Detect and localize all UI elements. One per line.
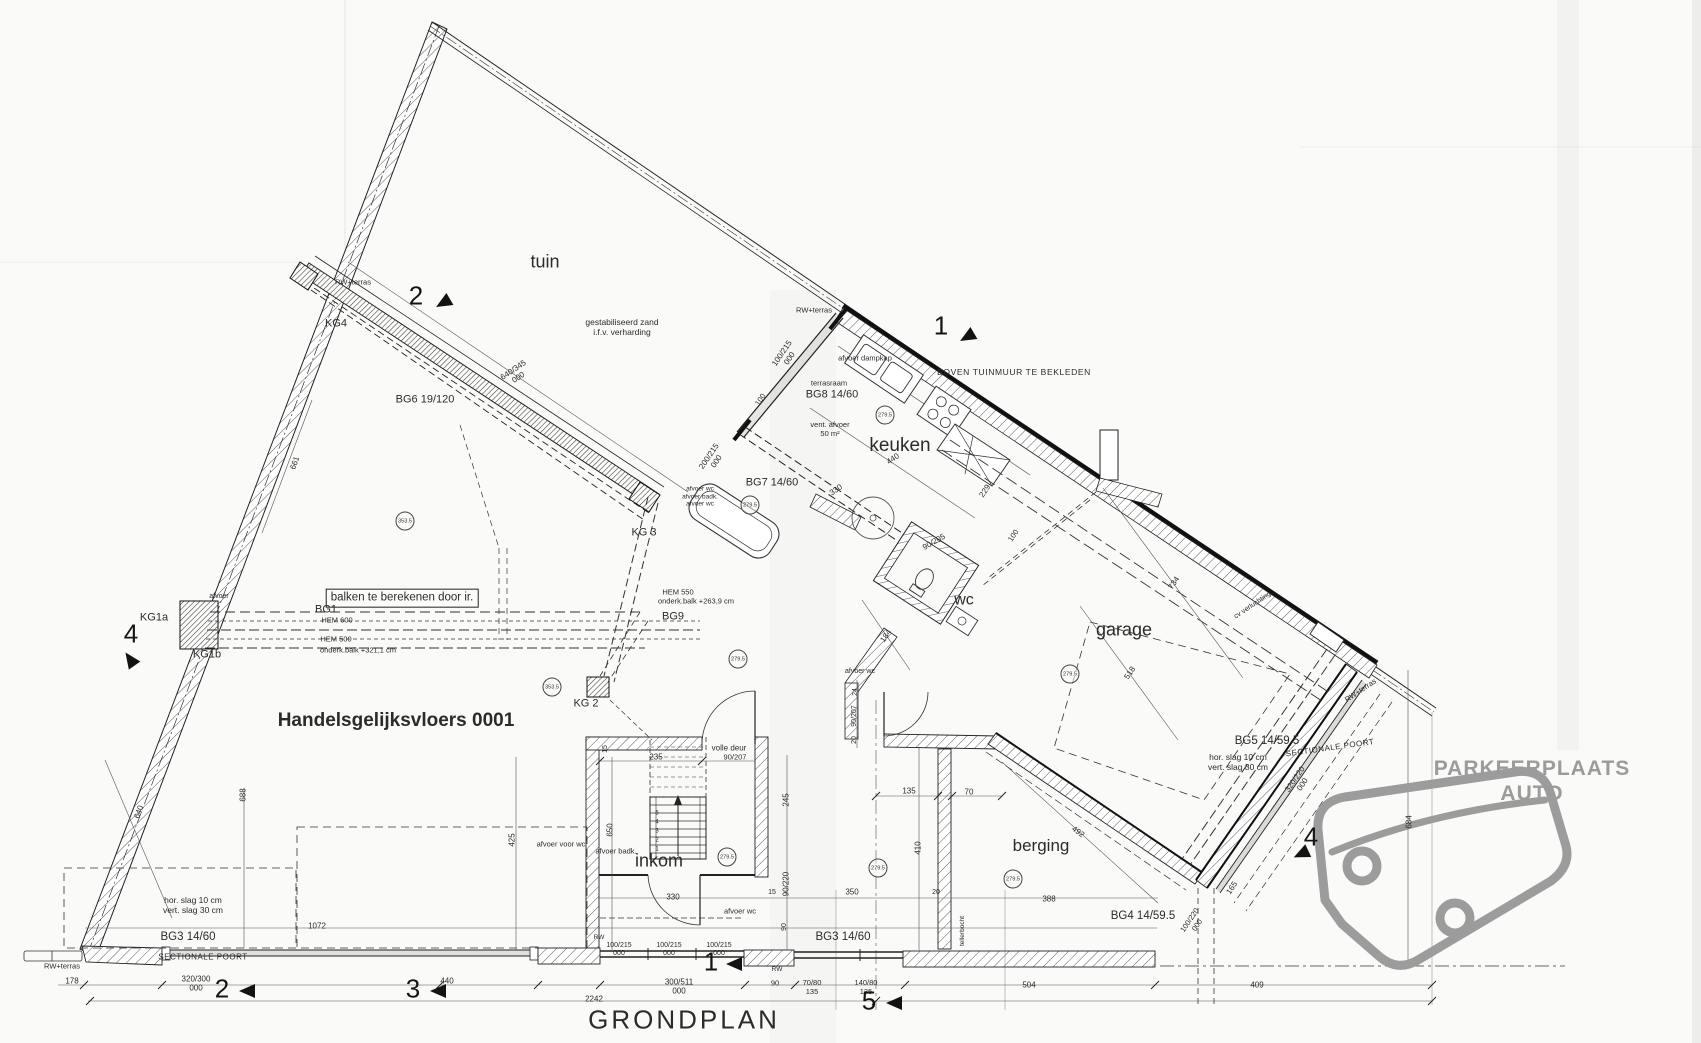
slag-zones bbox=[64, 827, 587, 948]
bathtub bbox=[684, 479, 785, 564]
dimension-lines bbox=[58, 262, 1432, 1010]
bottom-wall bbox=[24, 946, 1155, 967]
left-boundary-wall bbox=[80, 22, 447, 957]
floor-plan-page: tuinkeukenwcgarageberginginkomHandelsgel… bbox=[0, 0, 1701, 1043]
kg-columns bbox=[180, 601, 609, 697]
berging-walls bbox=[884, 692, 1203, 949]
staircase bbox=[610, 700, 706, 859]
floor-plan-drawing bbox=[0, 0, 1701, 1043]
inkom-walls bbox=[586, 691, 768, 957]
car-outline bbox=[1318, 771, 1567, 965]
wc-basin bbox=[946, 606, 978, 635]
corridor-walls bbox=[845, 628, 897, 739]
terrace-wall bbox=[290, 256, 664, 520]
wc-room bbox=[873, 522, 978, 624]
